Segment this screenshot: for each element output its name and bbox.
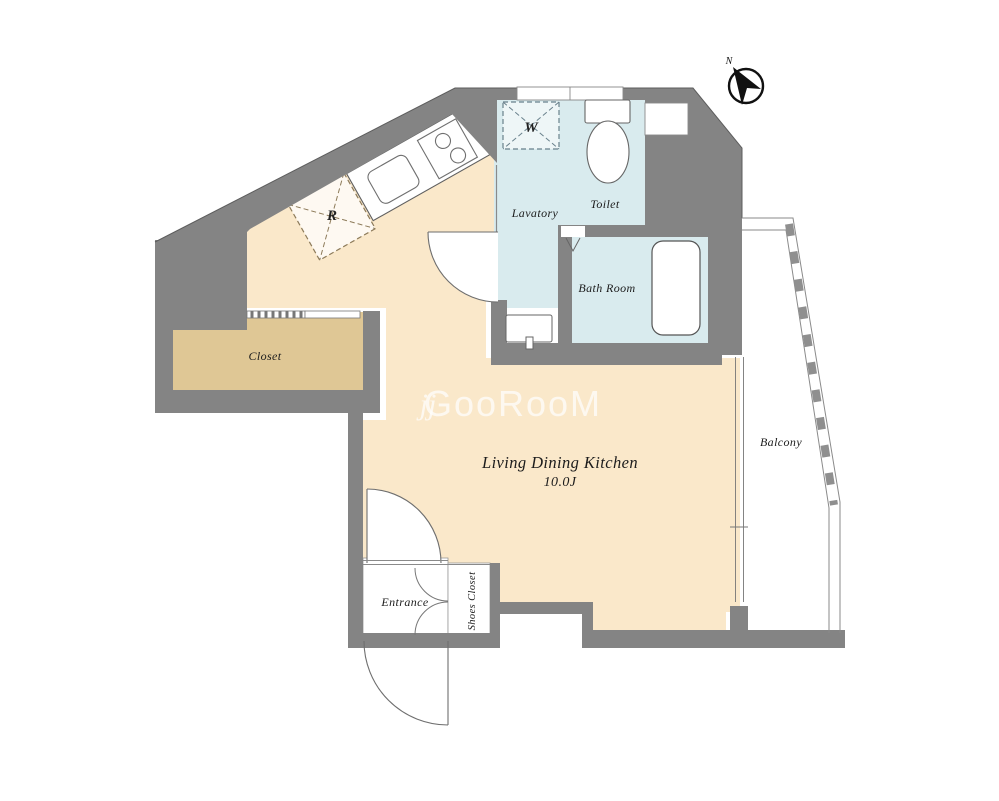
- closet-sliding-door: [247, 311, 360, 318]
- wall-closet-east: [363, 311, 380, 390]
- label-refrigerator: R: [326, 208, 337, 224]
- bathtub: [652, 241, 700, 335]
- label-ldk-size: 10.0J: [544, 475, 577, 490]
- label-balcony: Balcony: [760, 435, 802, 449]
- wall-entrance-bottom: [348, 633, 500, 648]
- label-toilet: Toilet: [590, 197, 620, 211]
- toilet-symbol: [585, 100, 630, 183]
- label-ldk: Living Dining Kitchen: [481, 453, 638, 472]
- wall-entrance-west: [348, 413, 363, 648]
- entrance-door-arc: [364, 641, 448, 725]
- compass-north-icon: N: [725, 56, 763, 105]
- label-entrance: Entrance: [380, 595, 428, 609]
- wall-closet-bottom: [155, 390, 380, 413]
- label-washer: W: [524, 120, 539, 136]
- svg-text:GooRooM: GooRooM: [424, 383, 602, 424]
- label-lavatory: Lavatory: [511, 206, 559, 220]
- meter-box: [645, 103, 688, 135]
- balcony-railing: [742, 218, 840, 633]
- label-closet: Closet: [248, 349, 281, 363]
- bath-door-gap: [561, 226, 585, 237]
- label-bathroom: Bath Room: [578, 281, 635, 295]
- wall-step: [495, 602, 593, 614]
- label-shoes-closet: Shoes Closet: [467, 571, 478, 630]
- wall-bottom: [582, 630, 845, 648]
- wall-left: [155, 240, 173, 413]
- wall-window-stub: [730, 606, 748, 637]
- floor-plan: N jj GooRooM Lavatory Toilet Bath Room C…: [0, 0, 999, 801]
- svg-text:N: N: [725, 56, 734, 67]
- watermark: jj GooRooM: [416, 383, 602, 424]
- wall-lavatory-west: [491, 300, 507, 350]
